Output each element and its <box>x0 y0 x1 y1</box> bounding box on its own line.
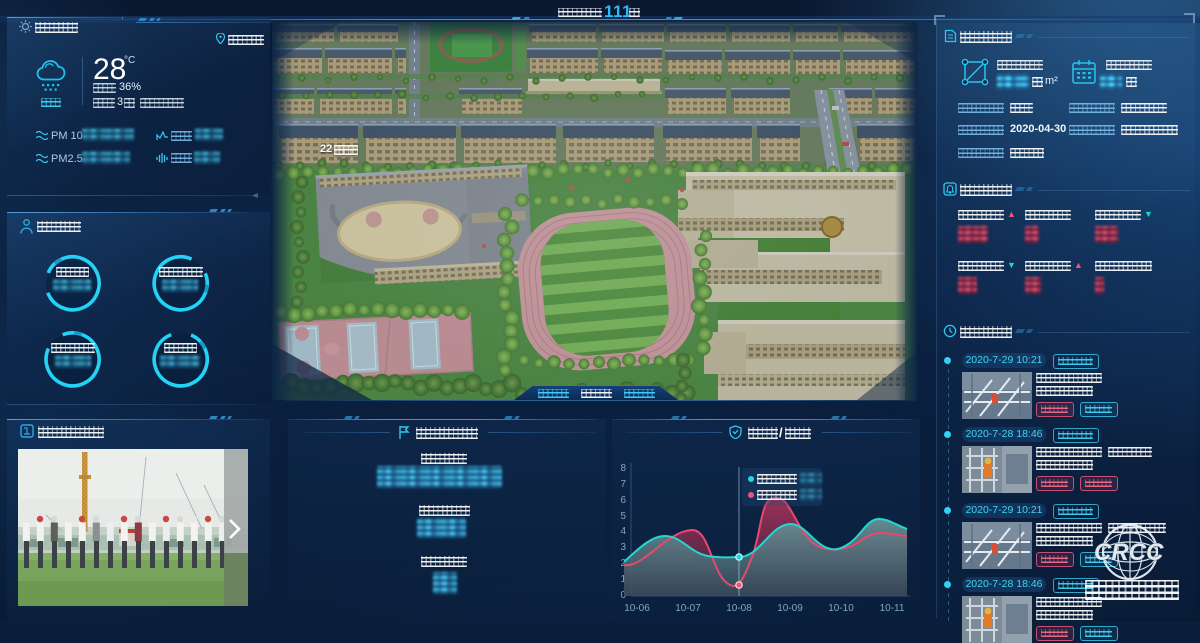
svg-text:10-06: 10-06 <box>624 603 650 614</box>
svg-text:10-10: 10-10 <box>828 603 854 614</box>
svg-text:CRCC: CRCC <box>1094 539 1164 566</box>
svg-text:6: 6 <box>620 495 626 506</box>
svg-text:10-07: 10-07 <box>675 603 701 614</box>
svg-text:3: 3 <box>620 542 626 553</box>
svg-text:5: 5 <box>620 511 626 522</box>
svg-text:7: 7 <box>620 479 626 490</box>
svg-text:10-08: 10-08 <box>726 603 752 614</box>
svg-text:10-11: 10-11 <box>880 603 905 614</box>
svg-text:4: 4 <box>620 526 626 537</box>
svg-text:10-09: 10-09 <box>777 603 803 614</box>
svg-text:8: 8 <box>620 463 626 474</box>
